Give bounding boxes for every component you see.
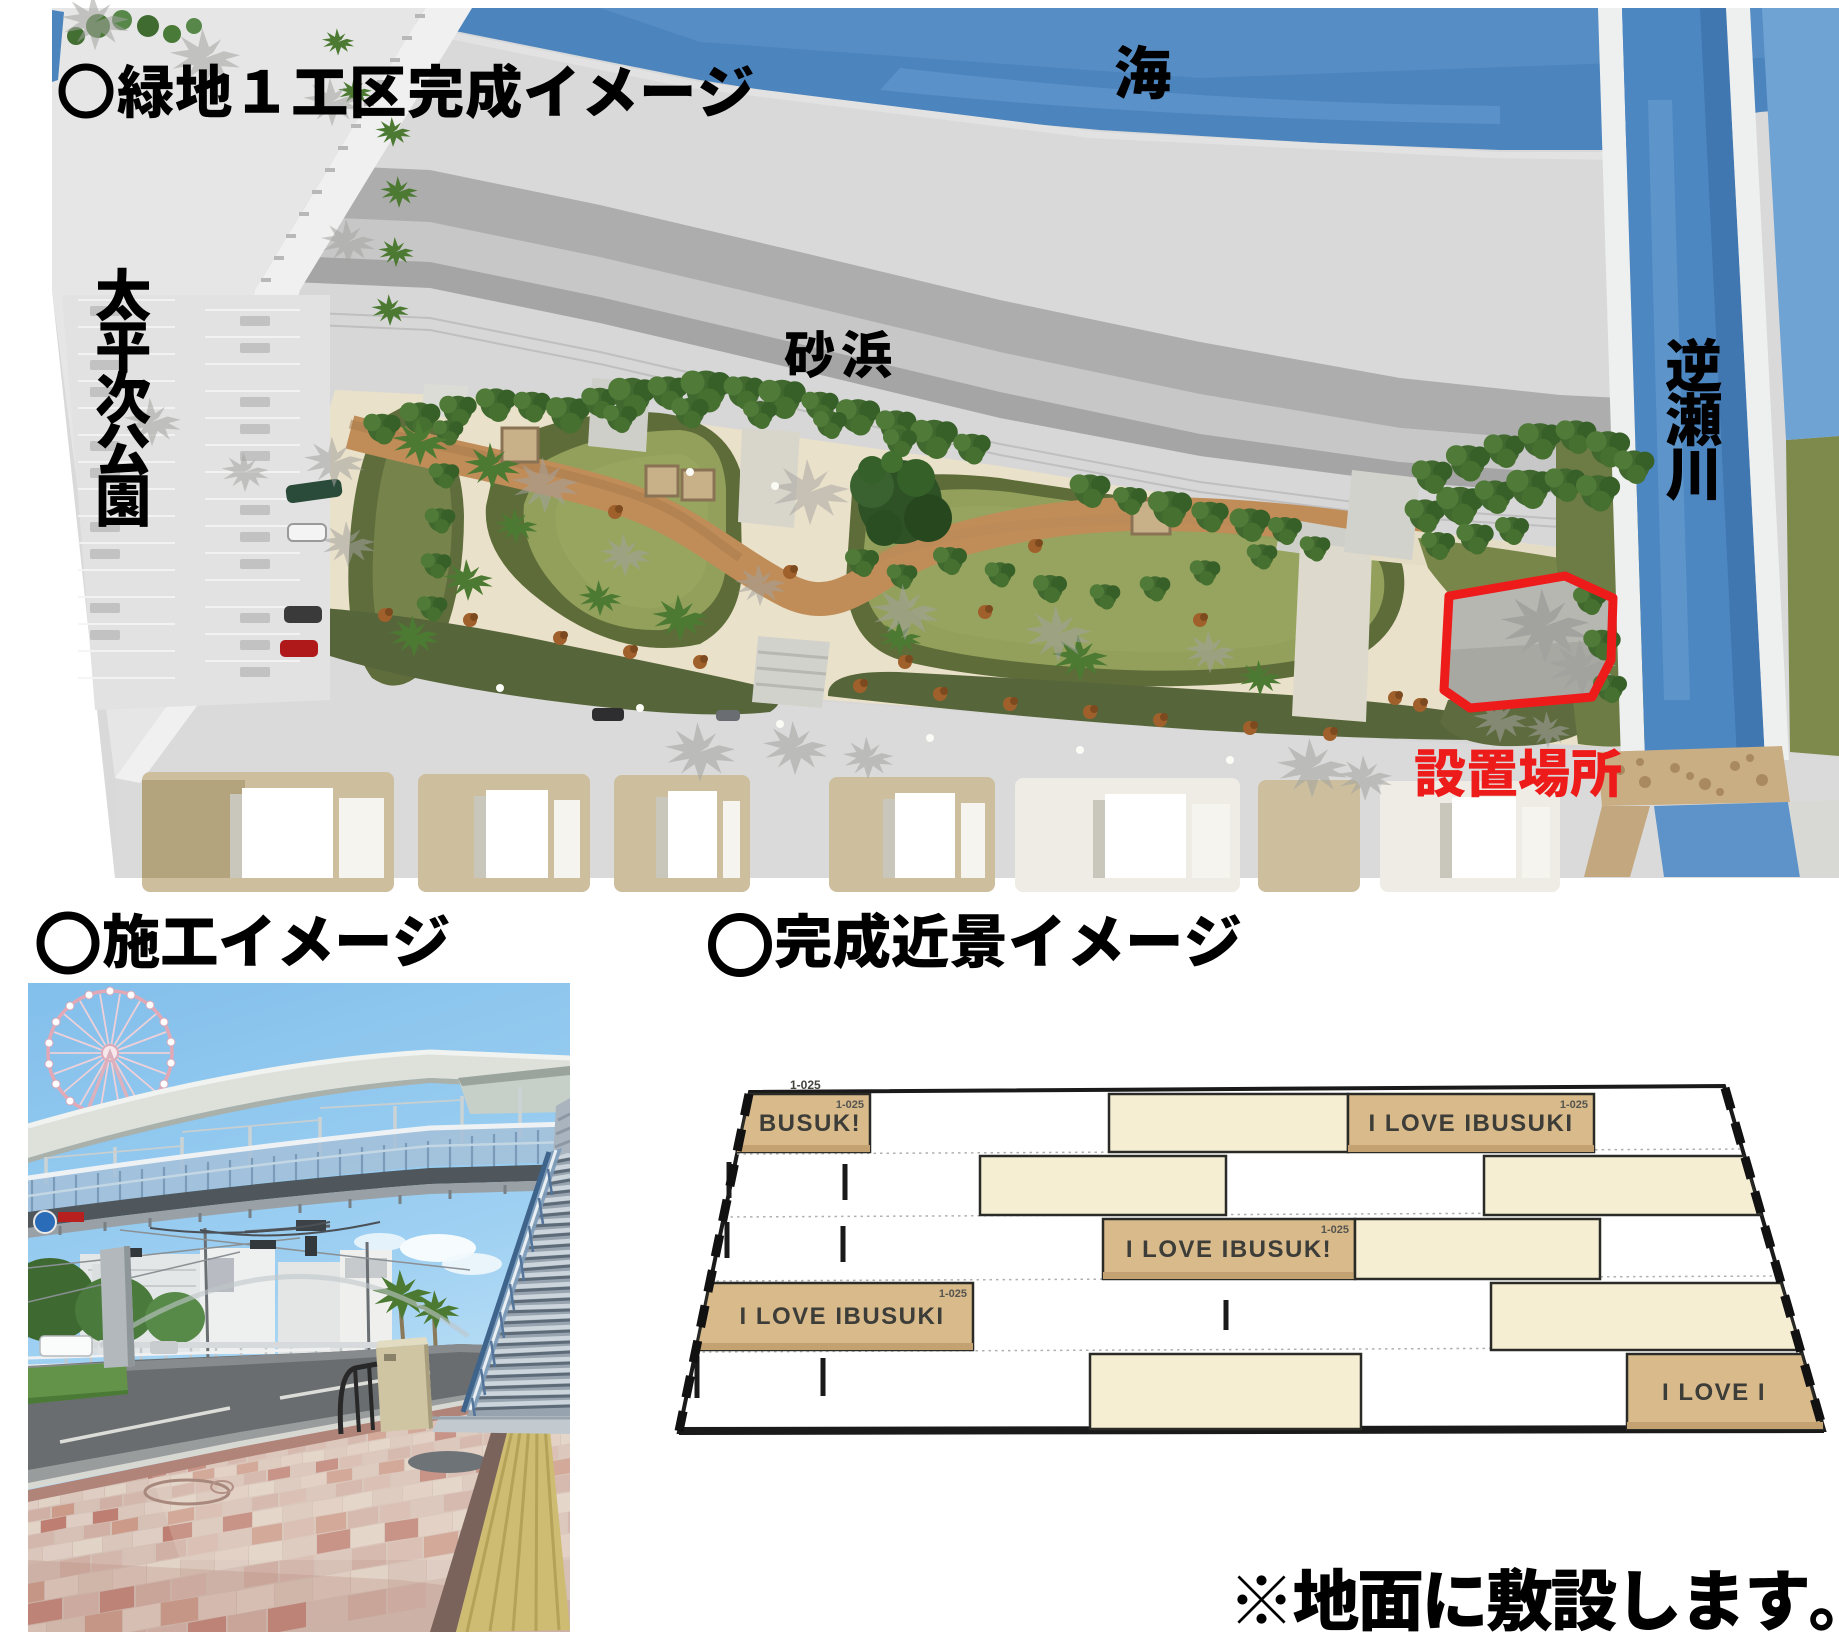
svg-text:1-025: 1-025 [836, 1099, 864, 1111]
svg-text:BUSUK!: BUSUK! [759, 1110, 861, 1137]
svg-text:1-025: 1-025 [1321, 1224, 1349, 1236]
svg-text:1-025: 1-025 [790, 1078, 821, 1092]
svg-text:I LOVE IBUSUKI: I LOVE IBUSUKI [739, 1303, 944, 1330]
svg-text:I LOVE IBUSUKI: I LOVE IBUSUKI [1368, 1110, 1573, 1137]
svg-text:1-025: 1-025 [939, 1288, 967, 1300]
svg-text:I LOVE I: I LOVE I [1662, 1379, 1766, 1406]
svg-text:1-025: 1-025 [1560, 1099, 1588, 1111]
svg-text:I LOVE IBUSUK!: I LOVE IBUSUK! [1126, 1236, 1332, 1263]
